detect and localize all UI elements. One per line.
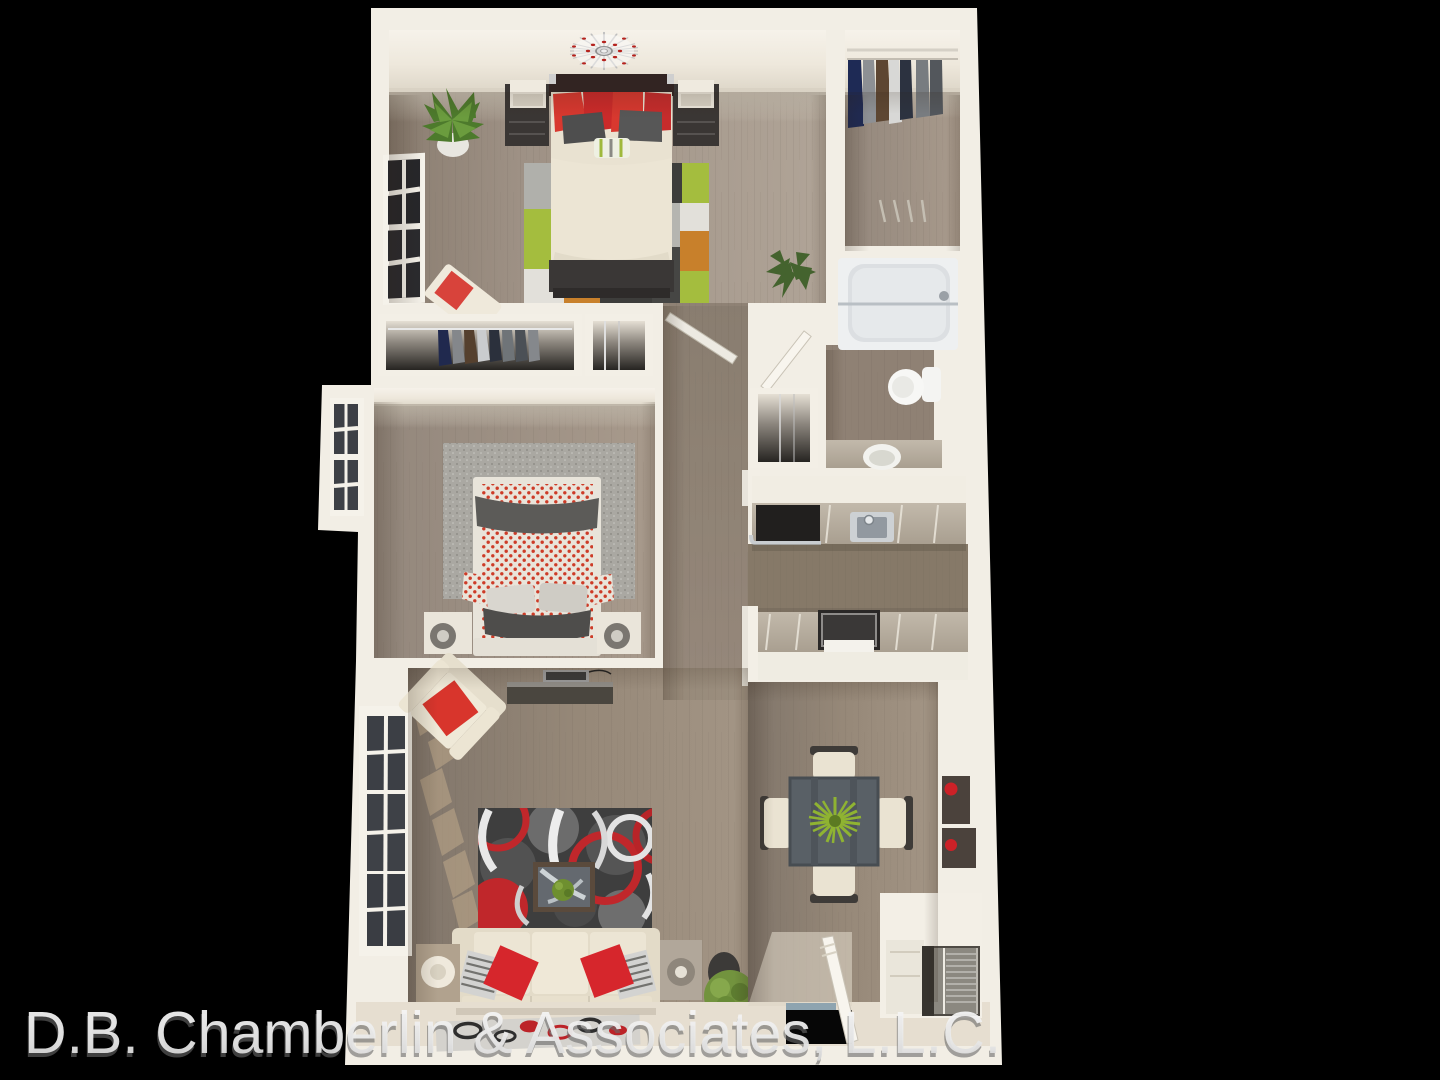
- svg-text:D.B. Chamberlin & Associates,: D.B. Chamberlin & Associates, L.L.C.: [24, 1000, 1001, 1066]
